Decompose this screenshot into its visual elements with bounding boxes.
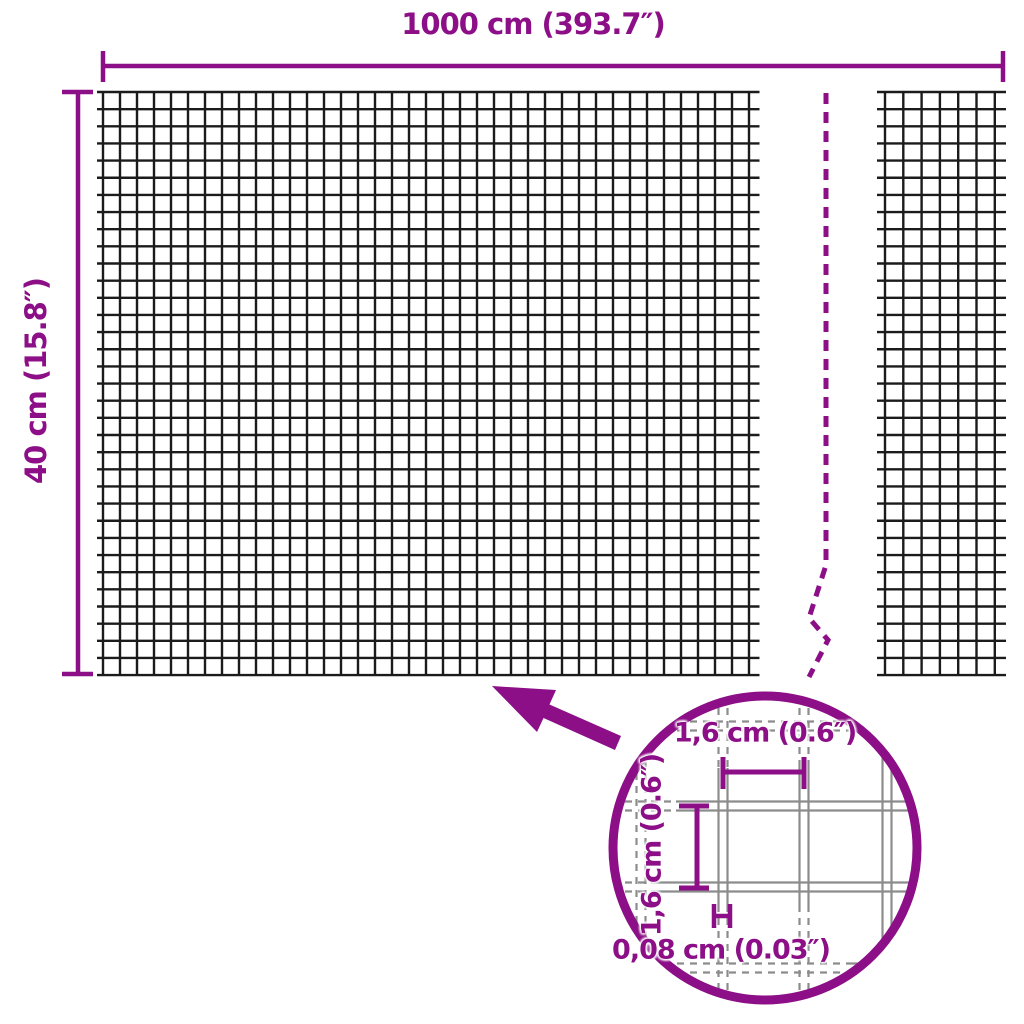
- product-dimension-diagram: 1000 cm (393.7″) 40 cm (15.8″) 1,6 cm (0…: [0, 0, 1024, 1024]
- detail-mesh-width-label: 1,6 cm (0.6″): [674, 718, 856, 749]
- detail-wire-thickness-label: 0,08 cm (0.03″): [612, 935, 830, 966]
- mesh-panel-right: [877, 92, 1006, 675]
- width-dimension-label: 1000 cm (393.7″): [401, 7, 665, 41]
- height-dimension-line: [62, 92, 93, 674]
- break-line: [809, 93, 828, 677]
- width-dimension-line: [103, 51, 1003, 82]
- height-dimension-label: 40 cm (15.8″): [19, 278, 53, 484]
- mesh-panel-left: [97, 92, 760, 675]
- detail-mesh-height-label: 1,6 cm (0.6″): [637, 754, 668, 936]
- zoom-arrow-icon: [492, 686, 621, 750]
- diagram-canvas: [0, 0, 1024, 1024]
